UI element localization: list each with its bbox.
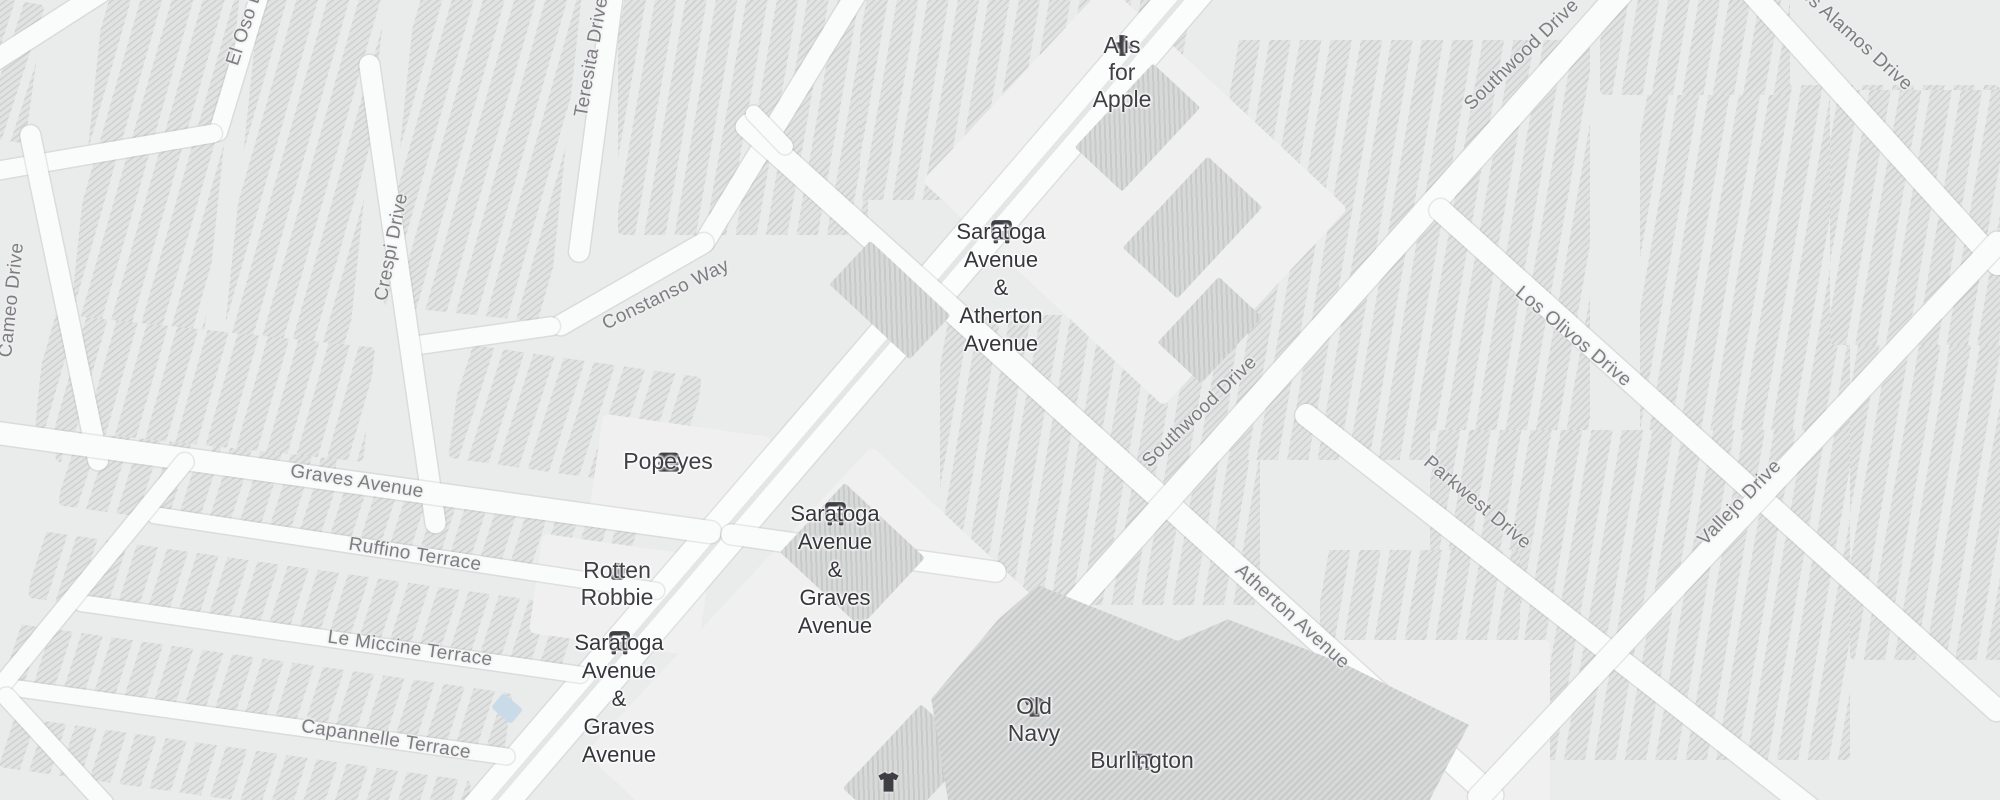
map-canvas[interactable]: El Oso Drive Cameo Drive Crespi Drive Te… [0,0,2000,800]
street-label-cameo-drive: Cameo Drive [0,242,29,359]
poi-label: Old Navy [1008,693,1060,747]
tshirt-icon [875,768,902,795]
city-block [383,0,582,323]
poi-label: Rotten Robbie [581,557,654,611]
city-block [1830,90,2000,345]
poi-label: A is for Apple [1093,32,1152,113]
poi-label: Burlington [1090,747,1194,774]
transit-stop-label: Saratoga Avenue & Graves Avenue [790,500,879,640]
poi-label: Popeyes [623,448,713,475]
transit-stop-label: Saratoga Avenue & Graves Avenue [574,629,663,769]
transit-stop-label: Saratoga Avenue & Atherton Avenue [956,218,1045,358]
